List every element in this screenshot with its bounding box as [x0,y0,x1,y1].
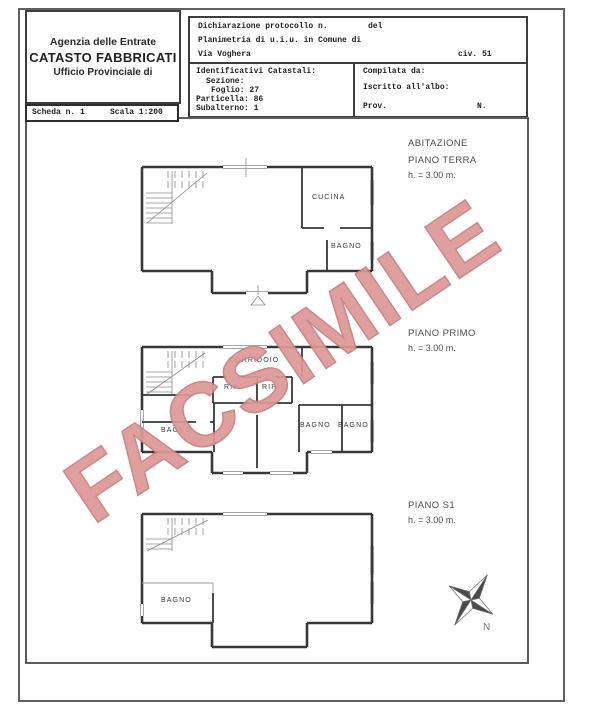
prov-label: Prov. [363,102,387,111]
protocol-label: Dichiarazione protocollo n. [198,22,328,31]
compilata-label: Compilata da: [363,67,425,76]
particella-value: Particella: 86 [196,95,263,104]
catasto-title: CATASTO FABBRICATI [29,50,176,65]
sezione-label: Sezione: [206,77,244,86]
declaration-box: Dichiarazione protocollo n. del Planimet… [188,16,528,118]
north-label: N [483,622,490,633]
planimetria-label: Planimetria di u.i.u. in Comune di [198,36,361,45]
piano-s1-height: h. = 3.00 m. [408,515,456,525]
civic-number: civ. 51 [458,50,492,59]
del-label: del [368,22,382,31]
room-label-bagno-primo-mid: BAGNO [300,422,331,429]
abitazione-label: ABITAZIONE [408,135,477,152]
scheda-box: Scheda n. 1 Scala 1:200 [25,104,179,122]
scheda-number: Scheda n. 1 [32,108,85,117]
cadastral-title: Identificativi Catastali: [196,67,316,76]
agency-name: Agenzia delle Entrate [50,36,156,48]
piano-s1-title-block: PIANO S1 h. = 3.00 m. [408,497,456,525]
scale-label: Scala 1:200 [110,108,163,117]
declaration-top-section: Dichiarazione protocollo n. del Planimet… [190,18,526,62]
room-label-bagno-s1: BAGNO [161,597,192,604]
street-label: Via Voghera [198,50,251,59]
agency-header-box: Agenzia delle Entrate CATASTO FABBRICATI… [25,10,181,104]
albo-label: Iscritto all'albo: [363,83,449,92]
room-label-cucina: CUCINA [312,194,345,201]
piano-terra-label: PIANO TERRA [408,152,477,169]
room-label-bagno-primo-right: BAGNO [338,422,369,429]
cadastral-ids-panel: Identificativi Catastali: Sezione: Fogli… [190,64,355,116]
compass-rose-icon [438,572,508,630]
n-label: N. [477,102,487,111]
foglio-value: Foglio: 27 [211,86,259,95]
subalterno-value: Subalterno: 1 [196,104,258,113]
piano-s1-label: PIANO S1 [408,497,456,514]
cadastral-plan-page: Agenzia delle Entrate CATASTO FABBRICATI… [0,0,600,714]
piano-terra-height: h. = 3.00 m. [408,170,477,180]
piano-s1-drawing [133,508,385,654]
ufficio-label: Ufficio Provinciale di [54,67,153,78]
declaration-bottom-section: Identificativi Catastali: Sezione: Fogli… [190,62,526,116]
piano-primo-height: h. = 3.00 m. [408,343,476,353]
compiler-panel: Compilata da: Iscritto all'albo: Prov. N… [355,64,526,116]
piano-terra-title-block: ABITAZIONE PIANO TERRA h. = 3.00 m. [408,135,477,180]
